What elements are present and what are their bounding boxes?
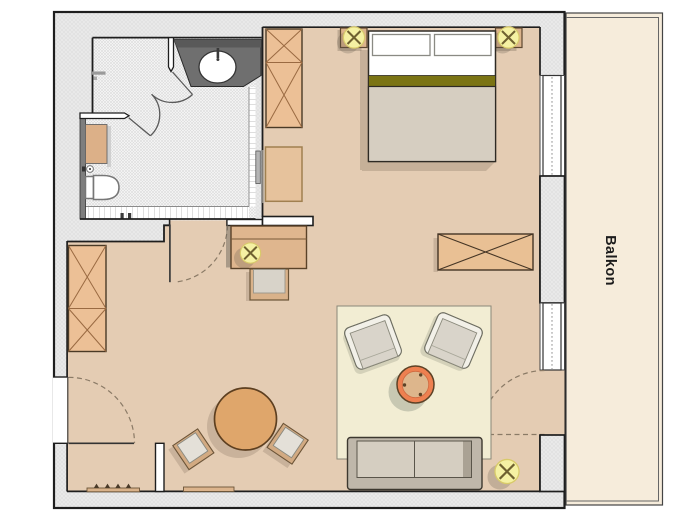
svg-text:Balkon: Balkon	[602, 235, 618, 286]
